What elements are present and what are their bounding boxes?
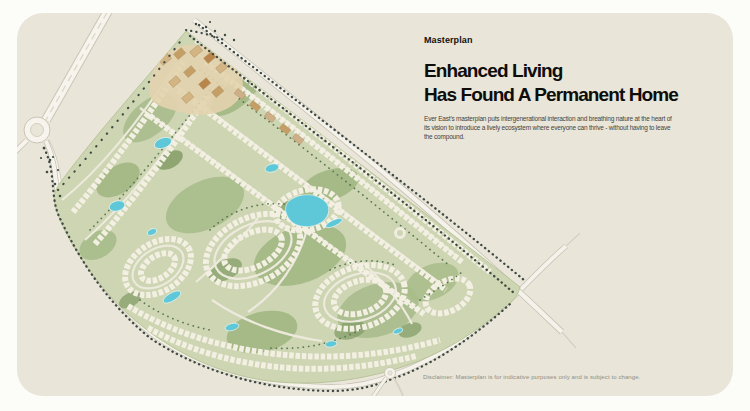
section-description: Ever East's masterplan puts intergenerat… bbox=[424, 114, 674, 141]
text-column: Masterplan Enhanced Living Has Found A P… bbox=[424, 36, 680, 141]
heading-line-1: Enhanced Living bbox=[424, 59, 680, 83]
heading-line-2: Has Found A Permanent Home bbox=[424, 83, 680, 107]
map-disclaimer: Disclaimer: Masterplan is for indicative… bbox=[423, 374, 640, 381]
highway-road bbox=[46, 2, 113, 120]
section-heading: Enhanced Living Has Found A Permanent Ho… bbox=[424, 59, 680, 106]
masterplan-section: Masterplan Enhanced Living Has Found A P… bbox=[0, 0, 750, 411]
eyebrow-label: Masterplan bbox=[424, 36, 680, 45]
